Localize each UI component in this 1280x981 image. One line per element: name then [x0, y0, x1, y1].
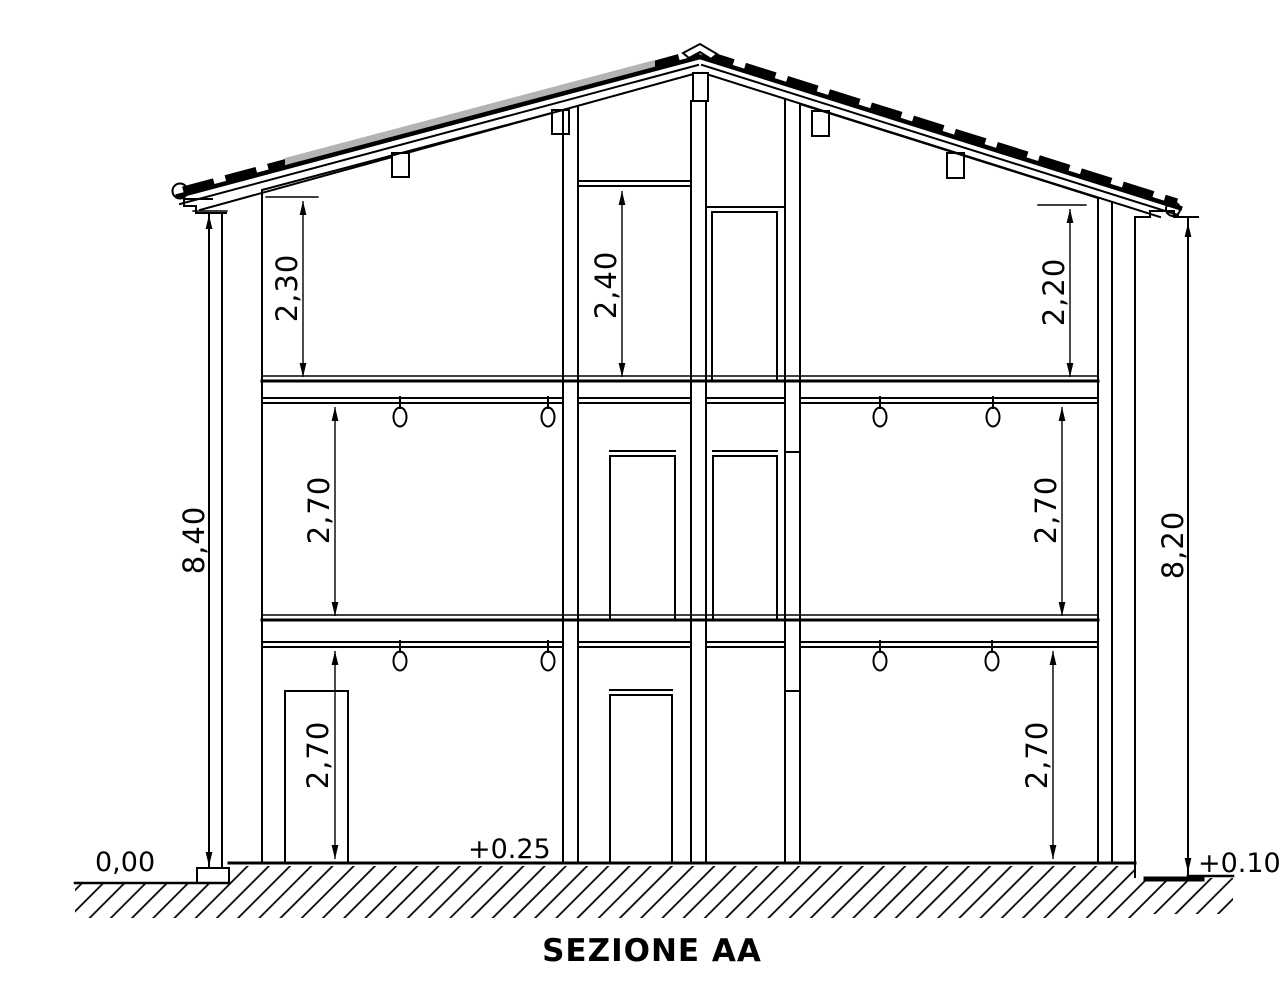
ground-hatch-center: [229, 866, 1135, 918]
dimensions: 8,40 8,20 2,30 2,40 2,20 2,70: [177, 191, 1190, 872]
dim-label-ground-right: 2,70: [1020, 721, 1054, 790]
dim-ground-right: 2,70: [1020, 651, 1054, 859]
rooms-ground-floor: [262, 642, 1098, 863]
dim-attic-left: 2,30: [266, 197, 318, 377]
purlin-left-2: [552, 110, 569, 134]
level-label-interior: +0.25: [468, 834, 551, 865]
ridge-beam: [693, 73, 708, 101]
lamp-icon: [542, 641, 555, 671]
dim-total-left: 8,40: [177, 211, 227, 866]
dim-label-attic-left: 2,30: [270, 254, 304, 323]
attic-room-right: [800, 104, 1098, 381]
roof-line-right-mid: [702, 65, 1178, 215]
roof-tiles-right: [703, 53, 1177, 202]
roof-line-left-bottom: [200, 73, 697, 210]
rooms-middle-floor: [262, 398, 1098, 620]
dim-label-attic-center: 2,40: [589, 251, 623, 320]
lamp-icon: [394, 641, 407, 671]
lamp-icon: [874, 397, 887, 427]
dim-label-ground-left: 2,70: [301, 721, 335, 790]
dim-first-left: 2,70: [302, 407, 336, 616]
attic-door: [712, 212, 777, 381]
ground-room-center-left: [578, 642, 691, 863]
level-label-street-right: +0.10: [1198, 848, 1280, 879]
lamp-icon: [986, 641, 999, 671]
drawing-title: SEZIONE AA: [542, 933, 762, 969]
dim-total-right: 8,20: [1156, 223, 1190, 872]
attic-room-left: [262, 110, 563, 381]
ground-door: [610, 695, 672, 863]
level-label-street-left: 0,00: [95, 847, 155, 878]
dim-label-first-right: 2,70: [1029, 476, 1063, 545]
first-room-center-right: [706, 398, 785, 620]
section-drawing-page: 8,40 8,20 2,30 2,40 2,20 2,70: [0, 0, 1280, 981]
roof-line-left-top: [178, 57, 700, 196]
roof-line-right-top: [700, 57, 1180, 208]
ground-room-center-right: [706, 642, 785, 863]
rooms-top-floor: [262, 104, 1098, 381]
dim-attic-right: 2,20: [1037, 205, 1086, 377]
ground-hatch-right: [1135, 878, 1233, 914]
first-door2: [713, 456, 777, 620]
dim-label-attic-right: 2,20: [1037, 258, 1071, 327]
purlin-right-1: [812, 111, 829, 136]
lamp-icon: [542, 397, 555, 427]
lamp-icon: [874, 641, 887, 671]
lamp-symbols: [394, 397, 1000, 671]
terrain: [75, 866, 1233, 918]
left-wall-footing: [197, 868, 229, 883]
dim-label-total-left: 8,40: [177, 506, 211, 575]
section-drawing: 8,40 8,20 2,30 2,40 2,20 2,70: [0, 0, 1280, 981]
purlin-left-1: [392, 153, 409, 177]
lamp-icon: [987, 397, 1000, 427]
roof-line-left-mid: [180, 65, 698, 204]
roof: [173, 44, 1181, 217]
dim-label-first-left: 2,70: [302, 476, 336, 545]
first-door1: [610, 456, 675, 620]
dim-ground-left: 2,70: [301, 651, 335, 859]
purlin-right-2: [947, 153, 964, 178]
dim-attic-center: 2,40: [589, 191, 623, 377]
ground-hatch-left: [75, 884, 229, 918]
dim-label-total-right: 8,20: [1156, 511, 1190, 580]
lamp-icon: [394, 397, 407, 427]
dim-first-right: 2,70: [1029, 407, 1063, 616]
